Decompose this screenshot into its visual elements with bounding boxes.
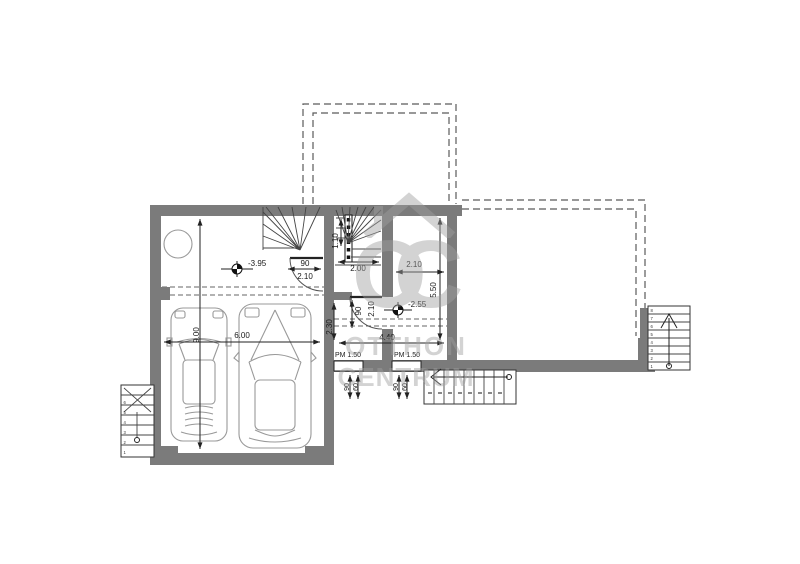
window-2 <box>392 361 421 371</box>
basement-floor-plan: 1 2 3 4 5 6 7 8 1 2 3 4 5 6 <box>0 0 800 564</box>
window-1 <box>334 361 363 371</box>
exterior-stair-left: 1 2 3 4 5 6 <box>121 385 154 457</box>
exterior-stair-right: 1 2 3 4 5 6 7 8 <box>648 306 690 370</box>
wall-garage-bottom <box>150 453 334 465</box>
dim-garage-width: 6.00 <box>234 331 250 340</box>
dim-entry-door-height: 2.10 <box>367 301 376 317</box>
upper-floor-outline-right <box>462 200 645 336</box>
dimension-lines <box>164 218 444 449</box>
dim-window2-sill: 60 <box>402 383 409 391</box>
dim-window1-parapet: PM 1.50 <box>335 352 361 359</box>
dim-vestibule-depth: 2.30 <box>325 319 334 335</box>
dim-window2-width: 90 <box>393 383 400 391</box>
dim-hall-length: 4.40 <box>379 333 395 342</box>
level-label-hall: -2.55 <box>408 300 427 309</box>
car-large-top-view <box>234 304 316 448</box>
upper-floor-outline-top <box>303 104 456 204</box>
dim-window2-parapet: PM 1.50 <box>394 352 420 359</box>
wall-stairhall-right <box>382 205 393 297</box>
wall-vestibule-stub <box>334 292 352 300</box>
wall-ext-stair-side <box>640 308 648 360</box>
dim-garage-depth: 9.00 <box>192 327 201 343</box>
dim-garage-door-height: 2.10 <box>297 272 313 281</box>
light-well-circle <box>164 230 192 258</box>
walls <box>150 205 655 465</box>
dim-garage-door-width: 90 <box>301 259 310 268</box>
dim-stair-flight-width: 1.10 <box>331 233 340 249</box>
floor-plan-canvas: 1 2 3 4 5 6 7 8 1 2 3 4 5 6 <box>0 0 800 564</box>
wall-top <box>150 205 462 216</box>
wall-room-left <box>447 205 457 372</box>
exterior-stair-bottom <box>424 369 516 404</box>
dim-hall-depth: 5.50 <box>429 282 438 298</box>
wall-left-pier <box>161 287 170 300</box>
dim-hall-width: 2.10 <box>406 260 422 269</box>
wall-garage-corner-left <box>153 446 178 454</box>
dim-window1-width: 90 <box>344 383 351 391</box>
level-label-garage: -3.95 <box>248 259 267 268</box>
dim-stair-width: 2.00 <box>350 264 366 273</box>
dim-window1-sill: 60 <box>353 383 360 391</box>
dim-entry-door-width: 90 <box>354 306 363 315</box>
